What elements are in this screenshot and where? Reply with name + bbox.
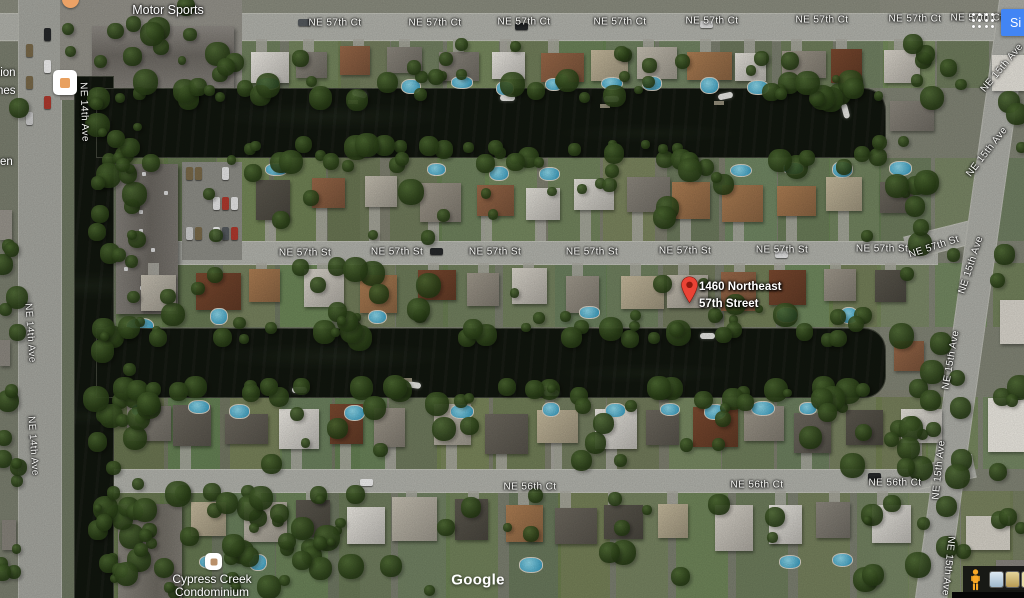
google-logo-watermark[interactable]: Google — [451, 572, 504, 589]
tree — [653, 206, 676, 229]
car — [868, 473, 881, 480]
tree — [398, 179, 424, 205]
tree — [1006, 394, 1019, 407]
tree — [327, 418, 348, 439]
tree — [377, 72, 398, 93]
house-roof — [816, 502, 850, 538]
tree — [272, 211, 290, 229]
tree — [407, 60, 421, 74]
poi-label-fragment-1: tion — [0, 67, 16, 79]
tree — [461, 497, 481, 517]
tree — [309, 557, 332, 580]
tree — [527, 82, 545, 100]
pool — [579, 306, 600, 319]
house-roof — [485, 414, 528, 454]
pool — [519, 557, 543, 572]
pool — [751, 401, 775, 416]
tree — [425, 392, 449, 416]
driveway — [340, 444, 351, 469]
pegman-icon[interactable] — [970, 569, 981, 591]
driveway — [481, 216, 492, 241]
tree — [523, 526, 539, 542]
driveway — [838, 211, 849, 241]
tree — [456, 69, 467, 80]
road-ne-56th-ct — [112, 469, 938, 493]
tree — [343, 257, 368, 282]
tree — [775, 88, 787, 100]
tree — [416, 273, 441, 298]
dots-grid-icon — [970, 12, 996, 29]
tree — [796, 323, 813, 340]
marker-address-line-2: 57th Street — [699, 296, 781, 313]
tree — [608, 492, 622, 506]
driveway — [535, 220, 546, 241]
house-roof — [225, 414, 268, 444]
tree — [203, 188, 215, 200]
tree — [593, 413, 614, 434]
tree — [510, 41, 521, 52]
tree — [642, 58, 656, 72]
tree — [346, 89, 368, 111]
tree — [315, 495, 324, 504]
tree — [213, 328, 232, 347]
tree — [313, 536, 327, 550]
tree — [98, 128, 107, 137]
tree — [463, 142, 474, 153]
car — [298, 19, 311, 26]
car — [26, 76, 33, 89]
house-roof — [347, 507, 385, 544]
driveway — [548, 39, 559, 53]
tree — [715, 327, 731, 343]
house-roof — [1000, 300, 1024, 344]
tree — [658, 144, 668, 154]
road-ne-57th-st — [138, 241, 938, 265]
driveway — [734, 263, 745, 272]
bottom-bar — [952, 592, 1024, 598]
tree — [204, 85, 214, 95]
tree — [310, 277, 326, 293]
tree — [799, 426, 822, 449]
tree — [694, 391, 713, 410]
tree — [476, 154, 495, 173]
pool — [539, 167, 559, 181]
tree — [874, 91, 884, 101]
tree — [585, 432, 606, 453]
tree — [737, 394, 754, 411]
tree — [133, 69, 159, 95]
tree — [754, 51, 769, 66]
house-roof — [392, 497, 437, 541]
poi-label-motor-sports[interactable]: Motor Sports — [132, 3, 204, 17]
tree — [920, 86, 944, 110]
driveway — [791, 39, 802, 51]
tree — [335, 518, 345, 528]
tree — [950, 397, 971, 418]
poi-label-cypress-creek[interactable]: Cypress Creek Condominium — [172, 573, 251, 598]
house-roof — [467, 273, 499, 306]
tree — [106, 461, 120, 475]
tree — [547, 187, 557, 197]
tree — [295, 136, 312, 153]
tree — [107, 23, 124, 40]
tree — [337, 316, 346, 325]
tree — [91, 205, 109, 223]
tree — [293, 378, 310, 395]
car — [700, 21, 713, 28]
driveway — [885, 263, 896, 270]
driveway — [256, 39, 267, 52]
car — [775, 251, 788, 258]
tree — [437, 209, 450, 222]
tree — [222, 534, 245, 557]
house-roof — [0, 210, 12, 240]
car — [44, 28, 51, 41]
car — [231, 197, 238, 210]
tree — [889, 323, 915, 349]
house-roof — [988, 398, 1024, 452]
tree — [291, 517, 314, 540]
tree — [653, 275, 672, 294]
tree — [614, 520, 630, 536]
tree — [363, 396, 387, 420]
pool — [210, 308, 228, 325]
tree — [708, 494, 729, 515]
pool — [660, 403, 681, 416]
car — [44, 96, 51, 109]
satellite-map[interactable]: NE 57th CtNE 57th CtNE 57th CtNE 57th Ct… — [0, 0, 1024, 598]
tree — [115, 562, 139, 586]
tree — [419, 136, 439, 156]
house-roof — [687, 52, 732, 80]
tree — [96, 514, 112, 530]
location-marker-pin[interactable] — [681, 276, 698, 304]
tree — [818, 403, 837, 422]
tree — [619, 71, 630, 82]
tree — [1006, 103, 1024, 125]
tree — [675, 54, 690, 69]
marker-address-line-1: 1460 Northeast — [699, 279, 781, 296]
tree — [711, 172, 722, 183]
car — [231, 227, 238, 240]
tree — [432, 417, 456, 441]
driveway — [572, 263, 583, 276]
tree — [885, 174, 909, 198]
tree — [503, 523, 512, 532]
tree — [781, 52, 799, 70]
house-roof — [537, 410, 578, 443]
tree — [133, 498, 157, 522]
tree — [437, 519, 455, 537]
tree — [91, 339, 114, 362]
tree — [903, 34, 923, 54]
tree — [306, 76, 318, 88]
tree — [160, 289, 175, 304]
house-roof — [340, 46, 370, 75]
tree — [955, 79, 967, 91]
poi-icon-cypress-creek[interactable] — [205, 553, 222, 570]
tree — [862, 564, 884, 586]
tree — [346, 485, 365, 504]
tree — [534, 157, 545, 168]
tree — [244, 164, 262, 182]
tree — [112, 248, 126, 262]
driveway — [316, 208, 327, 241]
tree — [765, 507, 785, 527]
poi-label-fragment-3: en — [0, 156, 13, 168]
tree — [9, 324, 26, 341]
pool — [779, 555, 801, 569]
tree — [127, 230, 137, 240]
house-roof — [365, 176, 397, 207]
car — [26, 44, 33, 57]
tree — [561, 327, 582, 348]
driveway — [180, 446, 191, 469]
tree — [279, 150, 303, 174]
car — [186, 227, 193, 240]
tree — [107, 130, 125, 148]
tree — [368, 230, 378, 240]
tree — [100, 332, 109, 341]
tree — [4, 242, 19, 257]
tree — [83, 386, 109, 412]
tree — [395, 152, 409, 166]
tree — [250, 141, 260, 151]
tree — [642, 76, 655, 89]
car — [222, 197, 229, 210]
house-roof — [658, 504, 688, 538]
tree — [149, 329, 167, 347]
tree — [463, 319, 483, 339]
tree — [671, 567, 690, 586]
tree — [169, 382, 188, 401]
tree — [261, 454, 282, 475]
tree — [123, 47, 141, 65]
rooftop-unit — [151, 248, 155, 252]
tree — [843, 78, 864, 99]
driveway — [678, 263, 689, 275]
driveway — [801, 453, 812, 469]
tree — [464, 393, 474, 403]
tree — [528, 488, 543, 503]
car — [213, 197, 220, 210]
tree — [154, 558, 174, 578]
tree — [913, 219, 930, 236]
tree — [257, 575, 281, 598]
driveway — [786, 216, 797, 241]
tree — [207, 267, 223, 283]
tree — [355, 133, 379, 157]
tree — [599, 542, 620, 563]
tree — [947, 248, 960, 261]
tree — [421, 230, 435, 244]
rooftop-unit — [139, 210, 143, 214]
tree — [603, 85, 625, 107]
rooftop-unit — [142, 172, 146, 176]
tree — [605, 164, 619, 178]
tree — [239, 334, 249, 344]
tree — [137, 392, 160, 415]
tree — [840, 453, 865, 478]
tree — [383, 375, 407, 399]
tree — [945, 464, 970, 489]
tree — [521, 323, 530, 332]
tree — [556, 69, 579, 92]
tree — [88, 223, 106, 241]
tree — [0, 564, 11, 581]
tree — [11, 458, 22, 469]
tree — [669, 322, 684, 337]
driveway — [291, 449, 302, 469]
poi-icon-left-edge[interactable] — [53, 70, 77, 95]
tree — [180, 527, 198, 545]
tree — [510, 288, 520, 298]
tree — [832, 75, 840, 83]
house-roof — [0, 340, 10, 366]
driveway — [700, 39, 711, 52]
car — [360, 479, 373, 486]
tree — [215, 92, 226, 103]
imagery-thumbnail-1[interactable] — [990, 572, 1003, 587]
car — [222, 167, 229, 180]
tree — [783, 389, 792, 398]
tree — [855, 424, 873, 442]
pool — [832, 553, 854, 567]
tree — [863, 516, 872, 525]
house-roof — [555, 508, 597, 545]
cypress-line-2: Condominium — [175, 585, 249, 598]
tree — [217, 58, 236, 77]
tree — [123, 363, 136, 376]
driveway — [774, 263, 785, 270]
house-roof — [249, 269, 281, 302]
tree — [270, 504, 289, 523]
car — [222, 227, 229, 240]
tree — [604, 143, 625, 164]
house-roof — [777, 186, 816, 216]
tree — [940, 59, 957, 76]
house-roof — [824, 269, 855, 301]
car — [195, 227, 202, 240]
imagery-thumbnail-2[interactable] — [1006, 572, 1019, 587]
tree — [265, 322, 277, 334]
tree — [621, 330, 639, 348]
tree — [746, 65, 756, 75]
tree — [648, 332, 660, 344]
tree — [292, 259, 309, 276]
tree — [575, 398, 591, 414]
pool — [368, 310, 387, 324]
driveway — [496, 454, 507, 469]
satellite-imagery — [0, 0, 1024, 598]
tree — [926, 422, 941, 437]
rooftop-unit — [164, 191, 168, 195]
tree — [380, 555, 402, 577]
car — [195, 167, 202, 180]
pool — [730, 164, 752, 178]
tree — [178, 56, 187, 65]
house-roof — [992, 55, 1024, 91]
tree — [767, 532, 778, 543]
tree — [680, 438, 694, 452]
tree — [498, 378, 516, 396]
tree — [279, 575, 290, 586]
tree — [848, 316, 864, 332]
tree — [994, 244, 1014, 264]
tree — [118, 316, 141, 339]
tree — [481, 188, 492, 199]
tree — [897, 458, 915, 476]
tree — [883, 495, 900, 512]
cypress-line-1: Cypress Creek — [172, 572, 251, 586]
tree — [338, 554, 363, 579]
driveway — [478, 263, 489, 273]
tree — [642, 505, 652, 515]
tree — [647, 376, 671, 400]
tree — [242, 384, 260, 402]
driveway — [829, 491, 840, 502]
tree — [1016, 142, 1024, 153]
tree — [914, 170, 939, 195]
tree — [140, 22, 164, 46]
pool — [188, 400, 210, 414]
tree — [161, 303, 185, 327]
tree — [799, 150, 815, 166]
tree — [65, 46, 76, 57]
tree — [142, 154, 160, 172]
tree — [936, 536, 958, 558]
poi-label-fragment-2: nes — [0, 85, 16, 97]
rooftop-unit — [124, 267, 128, 271]
tree — [869, 148, 887, 166]
tree — [323, 153, 339, 169]
tree — [12, 544, 21, 553]
pool — [229, 404, 250, 419]
pool — [700, 77, 719, 94]
imagery-control-panel — [963, 566, 1024, 593]
tree — [116, 158, 130, 172]
tree — [577, 184, 587, 194]
tree — [331, 328, 339, 336]
tree — [715, 411, 731, 427]
tree — [88, 432, 107, 451]
tree — [506, 153, 524, 171]
dock — [714, 101, 724, 105]
tree — [488, 209, 499, 220]
driveway — [428, 263, 439, 270]
tree — [920, 360, 944, 384]
tree — [292, 551, 312, 571]
tree — [126, 16, 141, 31]
driveway — [580, 210, 591, 241]
tree — [290, 407, 305, 422]
pool — [542, 402, 560, 417]
tree — [795, 71, 819, 95]
driveway — [643, 39, 654, 47]
tree — [917, 517, 931, 531]
tree — [115, 93, 125, 103]
tree — [897, 437, 920, 460]
tree — [525, 380, 544, 399]
tree — [1015, 522, 1024, 534]
tree — [342, 160, 353, 171]
tree — [6, 286, 29, 309]
tree — [428, 69, 444, 85]
sign-in-button[interactable]: Si — [1001, 9, 1024, 36]
tree — [460, 417, 479, 436]
house-roof — [646, 410, 679, 445]
house-roof — [512, 268, 547, 304]
